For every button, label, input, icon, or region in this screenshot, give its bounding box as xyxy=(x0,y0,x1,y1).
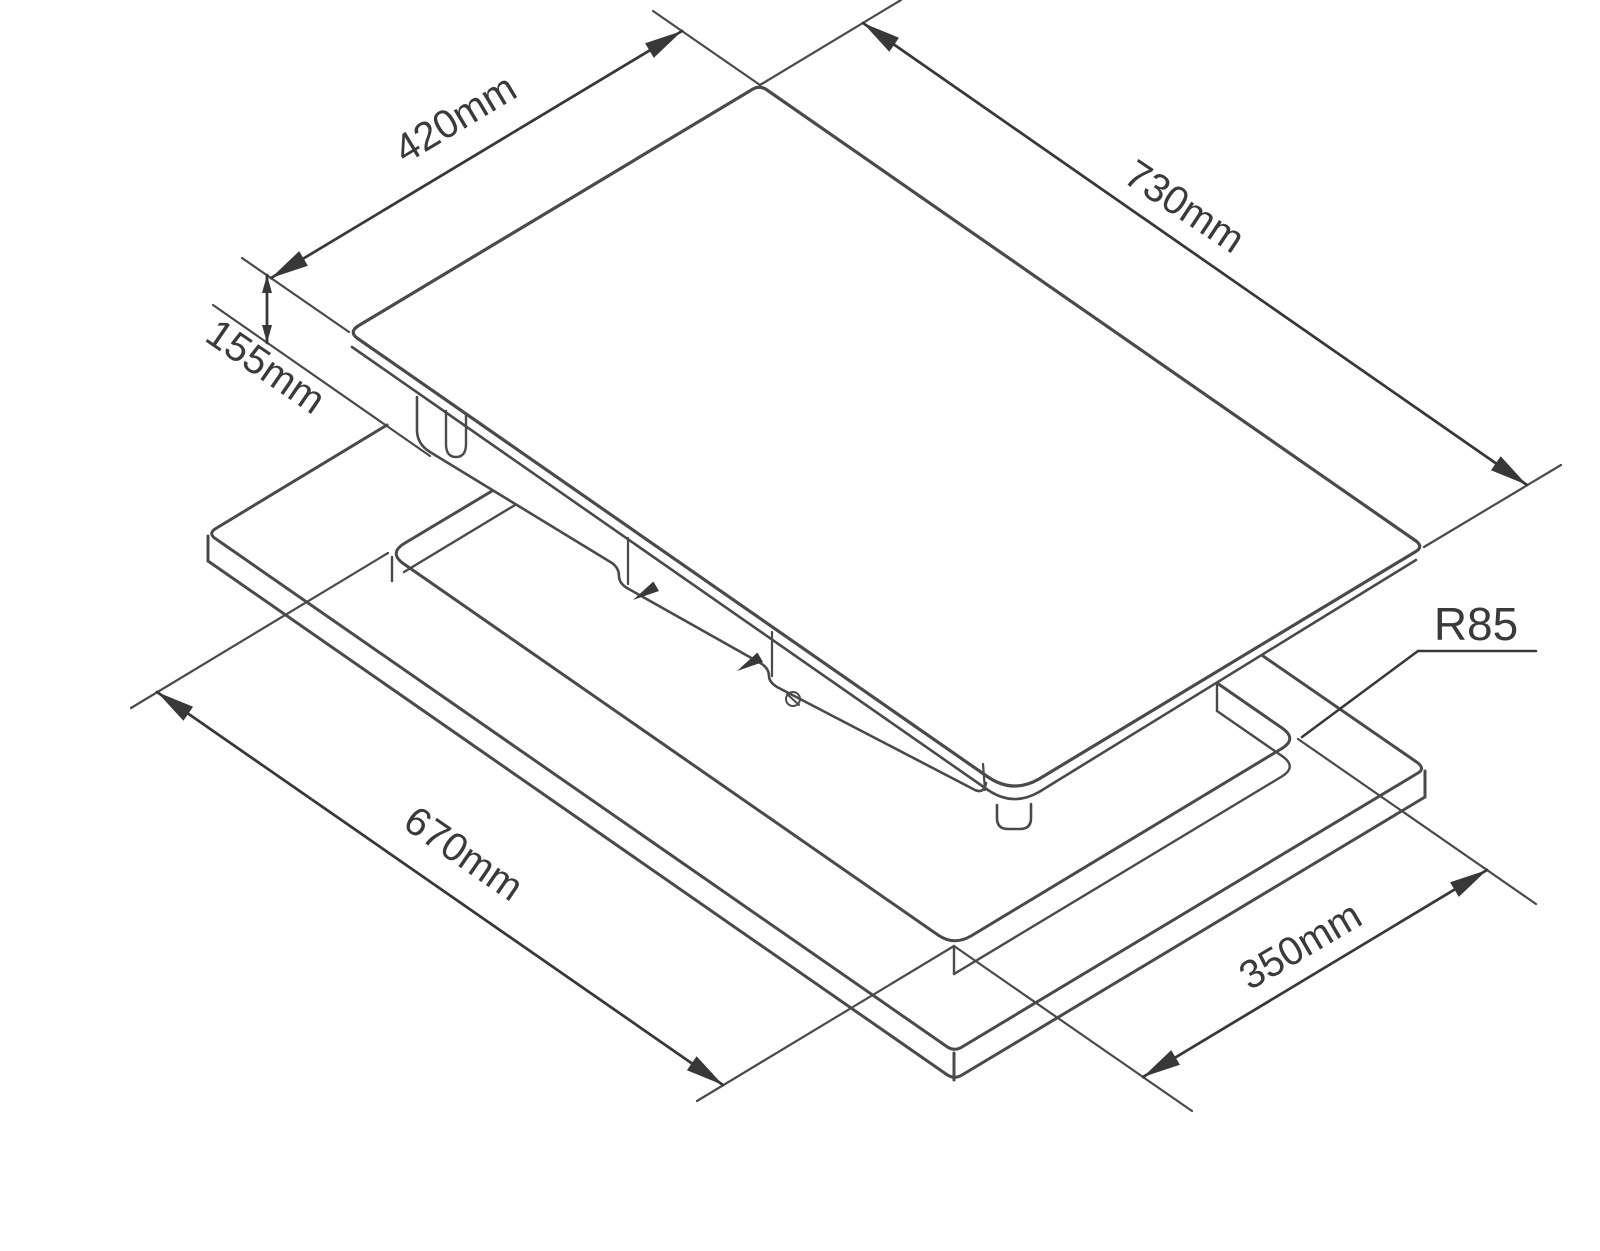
callout-r85-label: R85 xyxy=(1434,598,1518,650)
technical-drawing-page: 420mm730mm155mm670mm350mmR85 xyxy=(0,0,1600,1251)
hob-installation-diagram: 420mm730mm155mm670mm350mmR85 xyxy=(0,0,1600,1251)
